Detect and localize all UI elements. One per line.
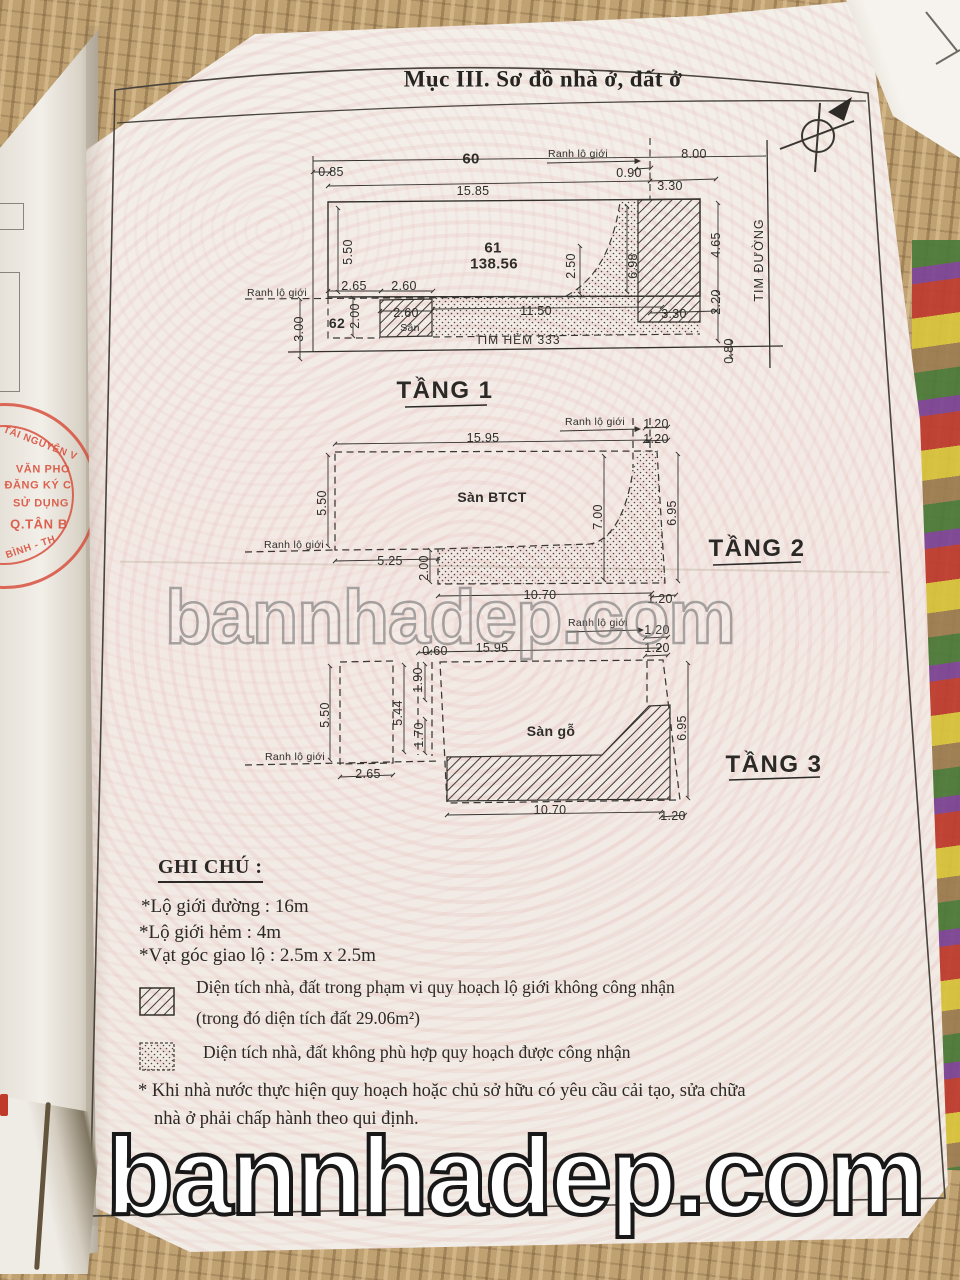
dim-label: 3.00 <box>293 316 306 342</box>
red-edge-mark <box>0 1094 8 1116</box>
dim-label: 1.20 <box>643 433 669 446</box>
legend-hatch-text: Diện tích nhà, đất trong phạm vi quy hoạ… <box>196 977 675 998</box>
stamp-text-line: ĐĂNG KÝ C <box>4 481 71 492</box>
note-item: *Lộ giới đường : 16m <box>141 896 309 918</box>
note-item: *Lộ giới hẻm : 4m <box>139 922 281 944</box>
floor3-title: TẦNG 3 <box>725 753 822 777</box>
dim-label: 6.95 <box>666 500 679 526</box>
tim-hem-label: TIM HẺM 333 <box>475 334 560 346</box>
dim-label: 5.25 <box>377 555 403 568</box>
bottom-watermark: bannhadep.com <box>86 1122 944 1232</box>
dim-label: 4.65 <box>710 232 723 258</box>
dim-label: 3.30 <box>661 308 687 321</box>
left-page-table-cell <box>0 203 24 230</box>
footnote-line: * Khi nhà nước thực hiện quy hoạch hoặc … <box>138 1081 746 1102</box>
dim-label: 2.50 <box>565 253 578 279</box>
photo-of-land-certificate-page: TÀI NGUYÊN V VĂN PHÒ ĐĂNG KÝ C SỬ DỤNG Q… <box>0 0 960 1280</box>
left-page-table-cell <box>0 272 20 392</box>
center-watermark: bannhadep.com <box>140 580 760 656</box>
ranh-lo-gioi-label: Ranh lộ giới <box>264 540 324 551</box>
san-label: Sân <box>400 323 420 334</box>
dim-label: 1.70 <box>413 722 426 748</box>
ranh-lo-gioi-label: Ranh lộ giới <box>548 149 608 160</box>
ranh-lo-gioi-label: Ranh lộ giới <box>565 417 625 428</box>
floor2-title: TẦNG 2 <box>708 537 805 561</box>
dim-label: 6.95 <box>676 715 689 741</box>
dim-label: 11.50 <box>520 305 552 318</box>
tim-duong-label: TIM ĐƯỜNG <box>753 218 766 301</box>
legend-dots-text: Diện tích nhà, đất không phù hợp quy hoạ… <box>203 1042 631 1063</box>
dim-label: 5.44 <box>392 700 405 726</box>
dim-label: 2.20 <box>710 289 723 315</box>
dim-label: 2.60 <box>391 280 417 293</box>
note-item: *Vạt góc giao lộ : 2.5m x 2.5m <box>139 945 376 967</box>
lot-number-61: 61 <box>484 241 501 256</box>
dim-label: 1.20 <box>660 810 686 823</box>
left-page-edge <box>0 0 98 1280</box>
dim-label: 3.30 <box>657 180 683 193</box>
dim-label: 7.00 <box>592 504 605 530</box>
dim-label: 0.90 <box>616 167 642 180</box>
stamp-text-line: SỬ DỤNG <box>13 499 69 510</box>
dim-label: 10.70 <box>534 804 567 817</box>
spine-fold-shadow <box>86 26 110 1226</box>
lot-number-62: 62 <box>329 316 345 330</box>
lot-area: 138.56 <box>470 257 518 272</box>
dim-label: 1.90 <box>412 667 425 693</box>
dim-label: 2.65 <box>341 280 367 293</box>
san-go-label: Sàn gỗ <box>527 724 575 738</box>
dim-label: 5.50 <box>316 490 329 516</box>
stamp-text-line: Q.TÂN B <box>10 518 68 531</box>
dim-label: 0.80 <box>723 338 736 364</box>
notes-heading: GHI CHÚ : <box>158 856 263 883</box>
dim-label: 6.98 <box>627 253 640 279</box>
dim-label: 5.50 <box>342 239 355 265</box>
legend-hatch-text2: (trong đó diện tích đất 29.06m²) <box>196 1008 420 1029</box>
dim-label: 5.50 <box>319 702 332 728</box>
dim-label: 1.20 <box>643 418 669 431</box>
dim-label: 2.65 <box>355 768 381 781</box>
dim-label: 0.85 <box>318 166 344 179</box>
ranh-lo-gioi-label: Ranh lộ giới <box>265 752 325 763</box>
dim-label: 2.00 <box>349 303 362 329</box>
san-btct-label: Sàn BTCT <box>457 490 526 504</box>
dim-label: 15.95 <box>467 432 500 445</box>
ranh-lo-gioi-label: Ranh lộ giới <box>247 288 307 299</box>
section-title: Mục III. Sơ đồ nhà ở, đất ở <box>404 68 682 91</box>
dim-label: 15.85 <box>457 185 490 198</box>
lot-number-60: 60 <box>462 152 479 167</box>
dim-label: 2.60 <box>393 307 419 320</box>
floor1-title: TẦNG 1 <box>396 379 493 403</box>
stamp-text-line: VĂN PHÒ <box>16 465 70 476</box>
dim-label: 8.00 <box>681 148 707 161</box>
